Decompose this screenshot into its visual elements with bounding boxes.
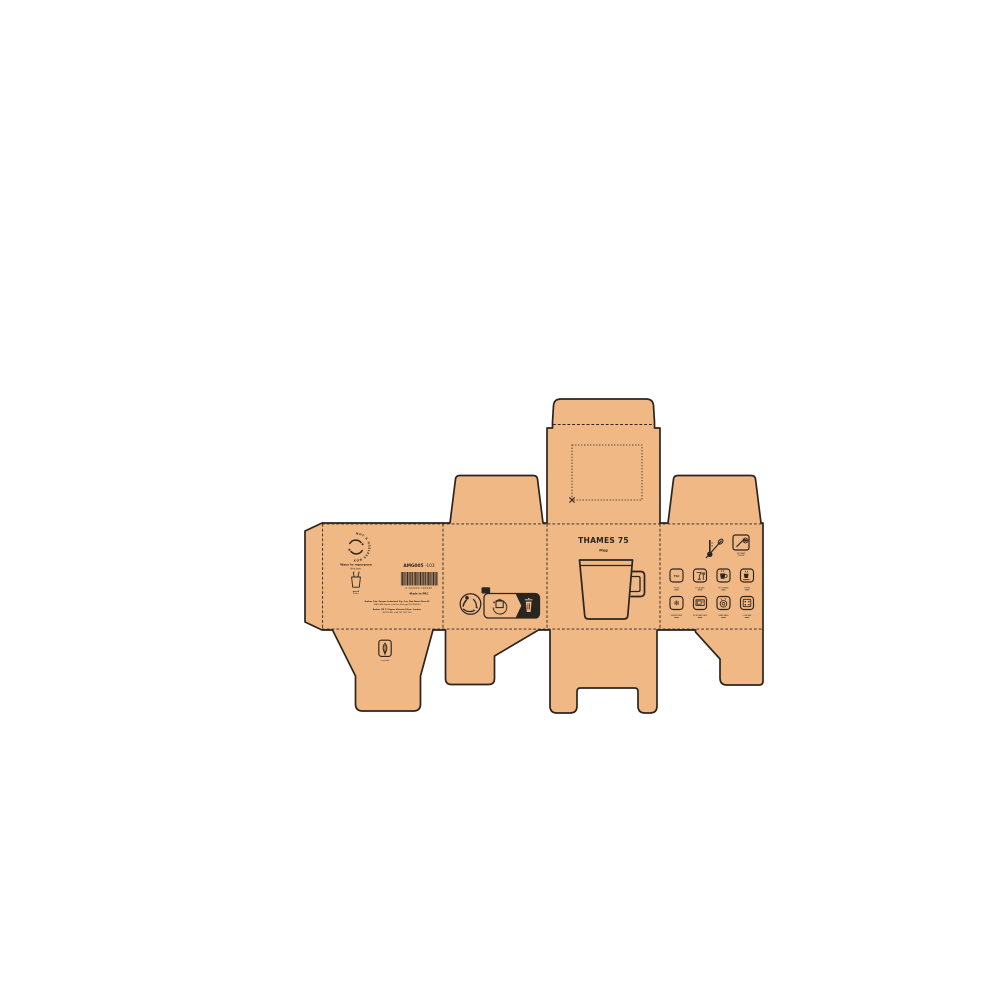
repurpose-subheading: this box:	[350, 567, 361, 571]
badge-dot-left	[348, 549, 350, 551]
decorate-caption-2: & REUSE	[737, 555, 744, 557]
address-line-2: 3080-380 Figueira da Foz, Portugal 91050…	[374, 603, 422, 606]
snowflake-glyph: ❄	[673, 599, 679, 608]
sku-suffix: -103	[425, 563, 435, 569]
sku-prefix: AMG005	[403, 563, 423, 569]
product-subtitle: Mug	[599, 549, 608, 553]
coffee-caption: COFFEE	[744, 587, 750, 589]
box-dieline: NOT A USELESS BOX Ways to repurpose this…	[303, 393, 768, 728]
repurpose-heading: Ways to repurpose	[340, 563, 372, 567]
pencil-caption-2: holder	[353, 592, 359, 595]
address-line-3: Amber UK 71 Upper Victoria Place, London	[373, 608, 422, 611]
address-line-4: WC2N 5BL +44 101 209 100	[383, 611, 412, 614]
sorting-tab-label: FR	[483, 589, 488, 593]
barcode-digits: 0 000000 000000	[406, 587, 433, 590]
made-in-label: Made in PRC	[410, 592, 429, 596]
sku-code: AMG005 -103	[403, 563, 435, 569]
badge-dot-right	[362, 543, 364, 545]
leaf-caption: recyclable	[381, 659, 390, 662]
address-line-1: Amber, Lda. Parque Industrial Fig. Foz, …	[365, 600, 430, 603]
hot-drink-caption: HOT DRINKS	[719, 587, 729, 589]
capacity-value: 75cl	[674, 574, 680, 578]
product-title: THAMES 75	[578, 536, 629, 545]
capacity-caption: 750 ML	[674, 587, 680, 589]
dieline-cut-outline	[305, 399, 763, 713]
dieline-container: NOT A USELESS BOX Ways to repurpose this…	[303, 393, 768, 728]
barcode	[401, 572, 439, 586]
